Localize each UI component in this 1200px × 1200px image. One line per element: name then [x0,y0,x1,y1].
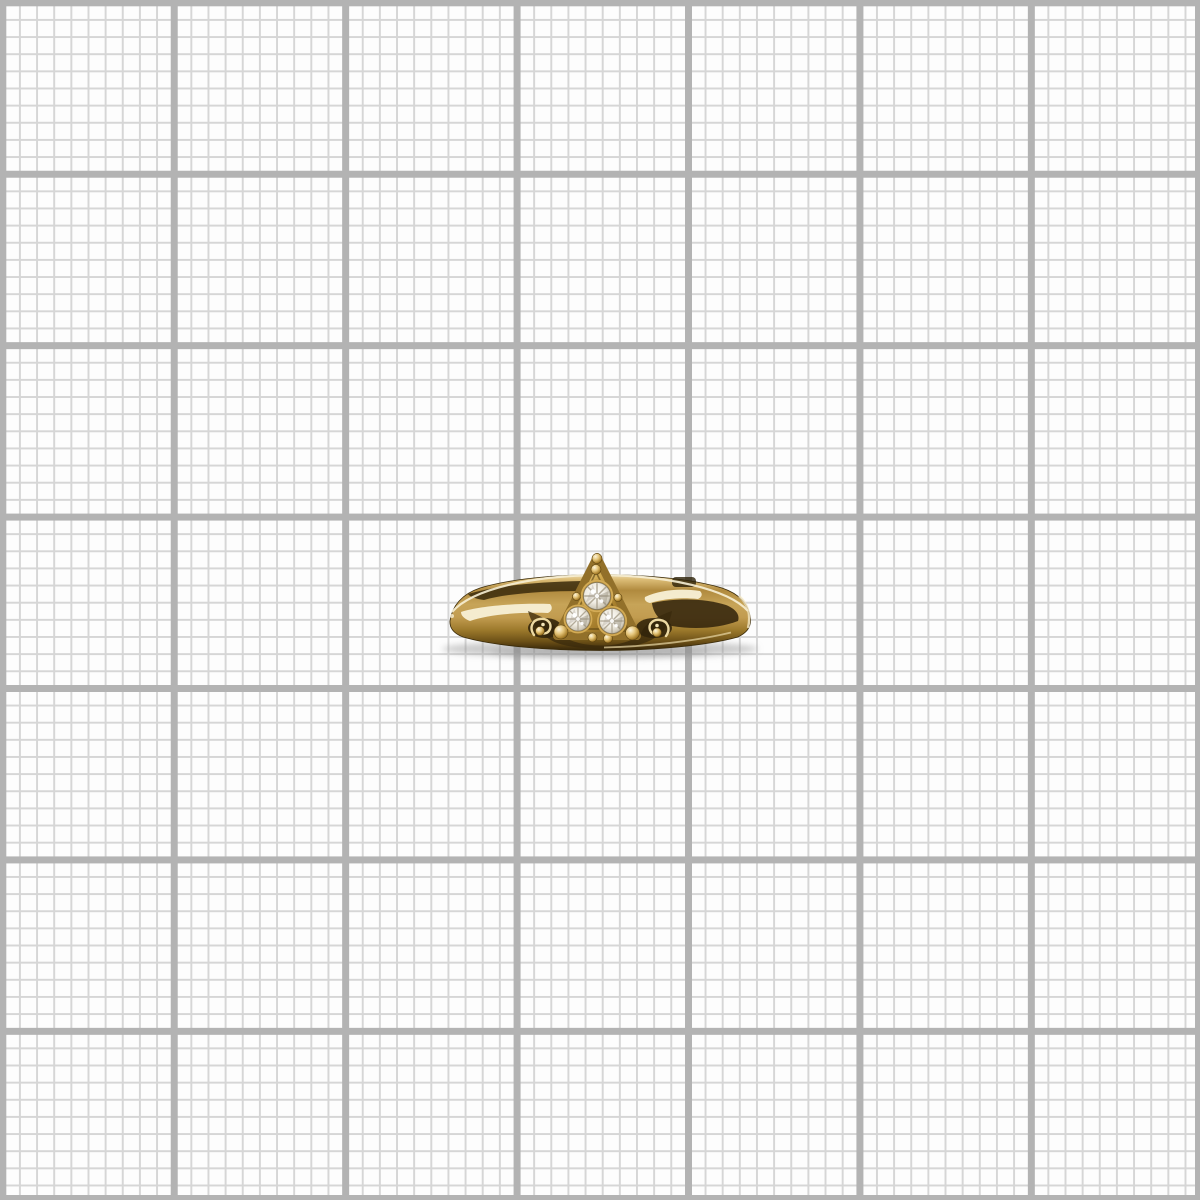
crystal [597,606,627,636]
gold-bead [653,628,662,637]
gold-bead [626,626,640,640]
gold-bead [592,554,602,564]
photo-canvas [0,0,1200,1200]
crystal [563,604,592,633]
gold-bead [588,633,597,642]
gold-bead [573,593,581,601]
gold-bead [591,565,601,575]
band-left-tip-light [450,614,454,618]
gold-bead [614,594,622,602]
gold-bead [536,627,545,636]
ring-illustration [0,0,1200,1200]
